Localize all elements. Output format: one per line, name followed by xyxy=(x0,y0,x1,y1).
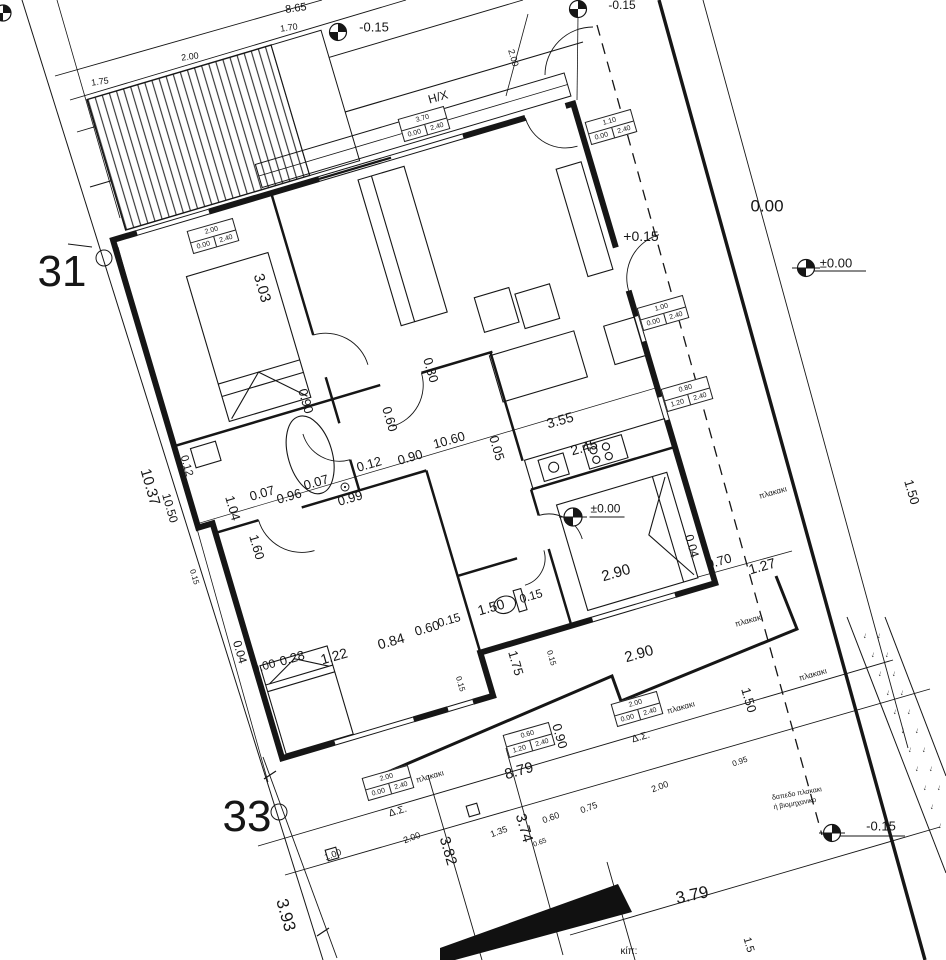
dimension-label: 10.50 xyxy=(160,492,180,524)
window-width: 2.00 xyxy=(612,692,659,716)
window-tag: 1.000.002.40 xyxy=(637,295,690,331)
dimension-label: 0.04 xyxy=(683,533,701,559)
plant-symbol: ↓ xyxy=(899,689,905,698)
plant-symbol: ↓ xyxy=(915,765,921,774)
dimension-label: 0.15 xyxy=(545,649,557,666)
dimension-label: 3.03 xyxy=(251,272,273,304)
elevation-label: -0.15 xyxy=(866,820,896,833)
plant-symbol: ↓ xyxy=(929,765,935,774)
plant-symbol: ↓ xyxy=(884,651,890,660)
dimension-label: 0.75 xyxy=(579,801,599,815)
dimension-label: 0.00 xyxy=(251,657,277,675)
window-head-height: 2.40 xyxy=(612,121,637,137)
dimension-label: 0.15 xyxy=(454,675,466,692)
dimension-label: 1.5 xyxy=(741,936,756,954)
dimension-label: 0.04 xyxy=(231,639,249,665)
dimension-label: 0.05 xyxy=(487,434,506,462)
dimension-label: 1.50 xyxy=(476,597,506,618)
window-head-height: 2.40 xyxy=(530,734,555,750)
dimension-label: 0.70 xyxy=(705,551,733,570)
elevation-label: ±0.00 xyxy=(820,257,852,270)
dimension-label: 0.65 xyxy=(532,837,547,848)
window-head-height: 2.40 xyxy=(214,230,239,246)
window-sill-height: 1.20 xyxy=(507,740,532,757)
dimension-label: 2.90 xyxy=(600,562,632,584)
window-width: 3.70 xyxy=(399,107,446,131)
window-width: 1.00 xyxy=(638,296,685,320)
plant-symbol: ↓ xyxy=(877,670,883,679)
area-label: πλακακι xyxy=(734,613,763,628)
elevation-label: -0.15 xyxy=(608,0,635,11)
window-sill-height: 1.20 xyxy=(665,394,690,411)
dimension-label: 8.65 xyxy=(285,2,308,16)
plant-symbol: ↓ xyxy=(907,746,913,755)
dimension-label: 0.90 xyxy=(396,447,424,466)
dimension-label: 0.15 xyxy=(188,568,200,585)
elevation-label: ±0.00 xyxy=(590,503,625,518)
dimension-label: 10.37 xyxy=(138,467,163,507)
dimension-label: 10.60 xyxy=(432,429,467,450)
plant-symbol: ↓ xyxy=(929,803,935,812)
dimension-label: 1.35 xyxy=(489,825,509,839)
area-label: πλακακι xyxy=(666,700,695,715)
window-width: 1.10 xyxy=(586,110,633,134)
window-head-height: 2.40 xyxy=(688,388,713,404)
plant-symbol: ↓ xyxy=(937,822,943,831)
dimension-label: 1.75 xyxy=(91,76,110,87)
dimension-label: 1.70 xyxy=(280,22,299,33)
dimension-label: 8.79 xyxy=(503,760,535,782)
window-head-height: 2.40 xyxy=(425,118,450,134)
plant-symbol: ↓ xyxy=(922,784,928,793)
area-label: δαπεδο πλακακι xyxy=(772,786,823,802)
window-tag: 2.000.002.40 xyxy=(187,218,240,254)
window-tag: 1.100.002.40 xyxy=(585,109,638,145)
window-sill-height: 0.00 xyxy=(615,709,640,726)
dimension-label: 0.96 xyxy=(275,486,303,505)
dimension-label: 1.27 xyxy=(747,556,777,577)
plant-symbol: ↓ xyxy=(863,632,869,641)
dimension-label: 3.79 xyxy=(674,883,710,907)
window-sill-height: 0.00 xyxy=(366,783,391,800)
dimension-label: 3.82 xyxy=(437,835,459,867)
dimension-label: 1.50 xyxy=(902,478,921,506)
dimension-label: 2.45 xyxy=(569,437,599,458)
plant-symbol: ↓ xyxy=(921,746,927,755)
dimension-label: 2.00 xyxy=(402,831,422,845)
dimension-label: 0.84 xyxy=(376,631,406,652)
dimension-label: 2.00 xyxy=(181,51,200,62)
plant-symbol: ↓ xyxy=(892,708,898,717)
window-sill-height: 0.00 xyxy=(589,127,614,144)
window-width: 2.00 xyxy=(188,219,235,243)
plant-symbol: ↓ xyxy=(870,651,876,660)
elevation-label: 0.00 xyxy=(750,198,783,215)
dimension-label: 0.99 xyxy=(336,488,364,507)
dimension-label: 1.60 xyxy=(247,533,266,561)
dimension-label: 1.04 xyxy=(223,494,242,522)
plant-symbol: ↓ xyxy=(900,727,906,736)
dimension-label: 1.75 xyxy=(506,649,525,677)
parcel-number: 33 xyxy=(223,795,272,839)
dimension-label: 3.93 xyxy=(273,897,298,933)
dimension-label: 1.50 xyxy=(739,686,758,714)
plant-symbol: ↓ xyxy=(877,632,883,641)
dimension-label: 0.12 xyxy=(178,454,194,478)
dimension-label: 0.28 xyxy=(278,648,306,667)
area-label: πλακακι xyxy=(415,769,444,784)
area-label: πλακακι xyxy=(758,485,787,500)
dimension-label: 0.60 xyxy=(413,618,441,637)
plant-symbol: ↓ xyxy=(914,727,920,736)
plant-symbol: ↓ xyxy=(906,708,912,717)
dimension-label: 0.15 xyxy=(518,587,544,605)
area-label: κίπ: xyxy=(621,947,638,957)
dimension-label: 0.15 xyxy=(436,611,462,629)
elevation-label: +0.15 xyxy=(623,229,658,243)
dimension-label: 1.22 xyxy=(319,646,349,667)
area-label: πλακακι xyxy=(798,667,827,682)
dimension-label: 0.12 xyxy=(355,454,383,473)
plant-symbol: ↓ xyxy=(885,689,891,698)
dimension-label: 0.95 xyxy=(731,756,748,769)
dimension-label: 0.90 xyxy=(550,722,569,750)
window-tag: 2.000.002.40 xyxy=(362,765,415,801)
annotation-layer: 8.651.702.001.75-0.15-0.152.00H/X+0.150.… xyxy=(0,0,946,960)
elevation-label: -0.15 xyxy=(359,21,389,34)
floor-plan-page: 8.651.702.001.75-0.15-0.152.00H/X+0.150.… xyxy=(0,0,946,960)
window-head-height: 2.40 xyxy=(664,307,689,323)
dimension-label: 0.60 xyxy=(380,405,399,433)
area-label: H/X xyxy=(427,88,450,105)
parcel-number: 31 xyxy=(38,250,87,294)
area-label: ή βιομηχανικο xyxy=(773,797,817,811)
dimension-label: 2.90 xyxy=(623,643,655,665)
window-head-height: 2.40 xyxy=(389,777,414,793)
window-tag: 0.601.202.40 xyxy=(503,722,556,758)
dimension-label: 0.07 xyxy=(302,472,330,491)
dimension-label: 0.30 xyxy=(421,356,440,384)
dimension-label: 2.00 xyxy=(506,48,519,67)
window-sill-height: 0.00 xyxy=(402,124,427,141)
window-width: 0.60 xyxy=(504,723,551,747)
dimension-label: 1.00 xyxy=(323,848,343,862)
plant-symbol: ↓ xyxy=(936,784,942,793)
window-head-height: 2.40 xyxy=(638,703,663,719)
window-tag: 3.700.002.40 xyxy=(398,106,451,142)
window-sill-height: 0.00 xyxy=(191,236,216,253)
dimension-label: 0.07 xyxy=(248,483,276,502)
dimension-label: 2.00 xyxy=(650,780,670,794)
area-label: Δ.Σ. xyxy=(388,805,408,820)
window-width: 2.00 xyxy=(363,766,410,790)
dimension-label: 3.74 xyxy=(513,812,535,844)
dimension-label: 3.55 xyxy=(545,410,575,431)
window-width: 0.80 xyxy=(662,377,709,401)
window-tag: 0.801.202.40 xyxy=(661,376,714,412)
area-label: Δ.Σ. xyxy=(631,731,651,746)
dimension-label: 0.90 xyxy=(296,387,315,415)
window-tag: 2.000.002.40 xyxy=(611,691,664,727)
plant-symbol: ↓ xyxy=(891,670,897,679)
window-sill-height: 0.00 xyxy=(641,313,666,330)
dimension-label: 0.60 xyxy=(541,811,561,825)
